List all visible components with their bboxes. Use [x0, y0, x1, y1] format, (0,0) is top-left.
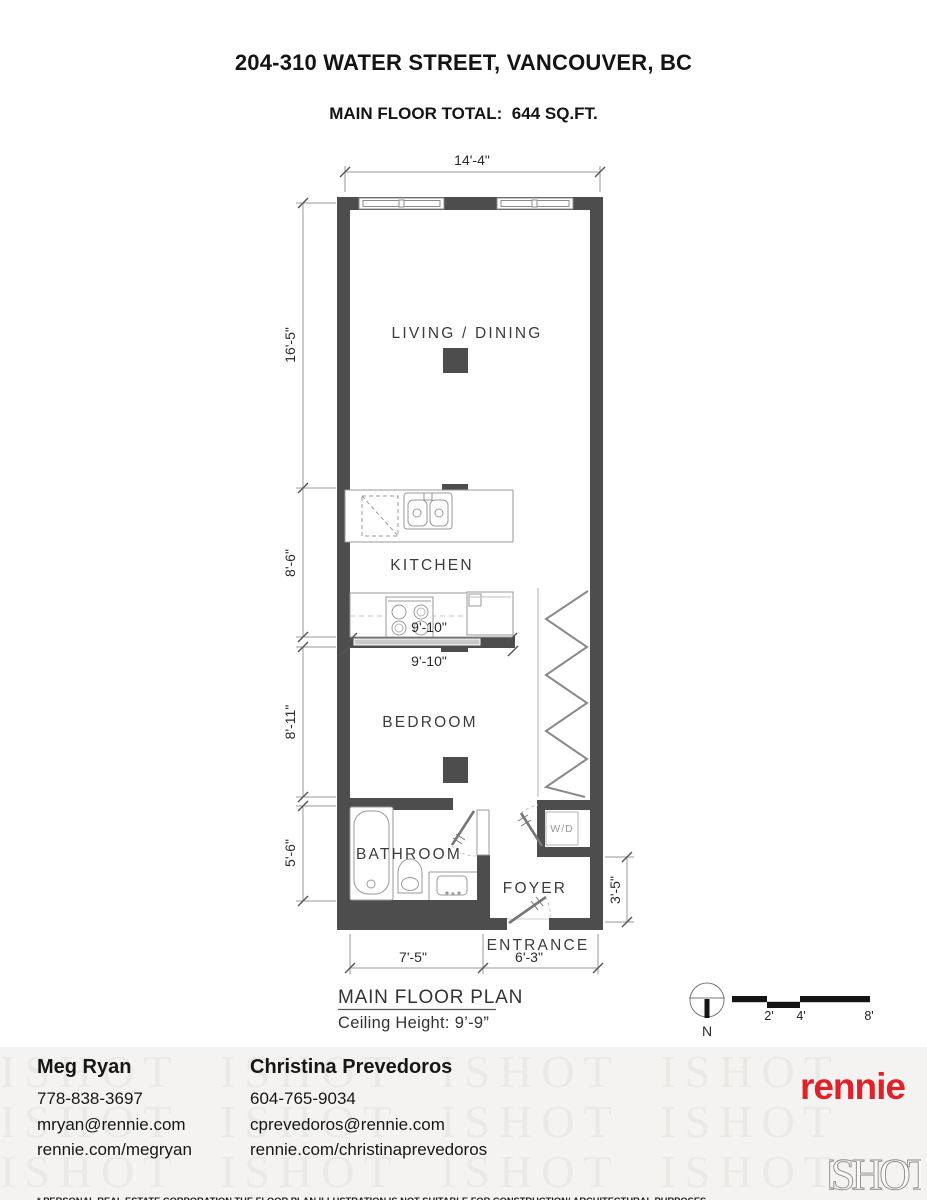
- agent-email: mryan@rennie.com: [37, 1112, 192, 1138]
- scale-tick-8: 8': [864, 1009, 873, 1023]
- scale-bar: 2' 4' 8': [732, 996, 874, 1023]
- agent-website: rennie.com/christinaprevedoros: [250, 1137, 487, 1163]
- plan-caption: MAIN FLOOR PLAN Ceiling Height: 9’-9”: [338, 987, 523, 1032]
- sliding-door: [354, 639, 480, 645]
- plan-caption-title: MAIN FLOOR PLAN: [338, 987, 523, 1008]
- disclaimer: * PERSONAL REAL ESTATE CORPORATION.THE F…: [37, 1163, 837, 1200]
- closet-bifold-doors: [538, 588, 588, 797]
- washer-dryer-label: W/D: [550, 823, 573, 835]
- dim-bathroom-height: 5'-6": [282, 839, 298, 867]
- toilet-icon: [398, 859, 422, 893]
- ishot-logo-text: ISHOT: [829, 1150, 921, 1199]
- agent-card-meg-ryan: Meg Ryan 778-838-3697 mryan@rennie.com r…: [37, 1056, 192, 1163]
- washer-dryer-unit: W/D: [546, 812, 578, 845]
- agent-name: Christina Prevedoros: [250, 1056, 487, 1079]
- floor-plan-drawing: W/D 14'-4: [0, 0, 927, 1045]
- floorplan-flyer: 204-310 WATER STREET, VANCOUVER, BC MAIN…: [0, 0, 927, 1200]
- scale-tick-2: 2': [764, 1009, 773, 1023]
- fridge-icon: [467, 592, 513, 635]
- scale-tick-4: 4': [796, 1009, 805, 1023]
- agent-phone: 604-765-9034: [250, 1086, 487, 1112]
- kitchen-label: KITCHEN: [390, 557, 473, 574]
- agent-email: cprevedoros@rennie.com: [250, 1112, 487, 1138]
- agent-website: rennie.com/megryan: [37, 1137, 192, 1163]
- vanity-sink-icon: [429, 872, 477, 900]
- agent-phone: 778-838-3697: [37, 1086, 192, 1112]
- entrance-label: ENTRANCE: [487, 937, 590, 954]
- bathroom-label: BATHROOM: [356, 846, 462, 863]
- dim-bedroom-height: 8'-11": [282, 705, 298, 740]
- dim-living-height: 16'-5": [282, 327, 298, 363]
- foyer-label: FOYER: [503, 880, 567, 897]
- dim-kitchen-width-lower: 9'-10": [411, 653, 447, 669]
- rennie-logo: rennie: [787, 1062, 907, 1110]
- dim-foyer-depth: 3'-5": [607, 876, 623, 904]
- living-dining-label: LIVING / DINING: [392, 325, 543, 342]
- double-sink-icon: [404, 493, 452, 529]
- north-label: N: [702, 1023, 712, 1039]
- agent-name: Meg Ryan: [37, 1056, 192, 1079]
- dim-kitchen-height: 8'-6": [282, 549, 298, 577]
- dim-bathroom-width: 7'-5": [399, 949, 427, 965]
- rennie-logo-text: rennie: [800, 1066, 905, 1107]
- bathroom-partition: [477, 810, 489, 855]
- agent-card-christina-prevedoros: Christina Prevedoros 604-765-9034 cpreve…: [250, 1056, 487, 1163]
- kitchen-island: [345, 490, 513, 542]
- ceiling-height-label: Ceiling Height: 9’-9”: [338, 1014, 489, 1032]
- north-compass-icon: N: [689, 983, 725, 1039]
- dim-top-width: 14'-4": [454, 152, 490, 168]
- ishot-logo: ISHOT: [829, 1147, 921, 1199]
- disclaimer-line-1: * PERSONAL REAL ESTATE CORPORATION.THE F…: [37, 1194, 837, 1200]
- dim-kitchen-width-upper: 9'-10": [411, 619, 447, 635]
- bedroom-label: BEDROOM: [382, 714, 478, 731]
- entrance-door: [507, 897, 550, 923]
- footer: ISHOT ISHOT ISHOT ISHOT ISHOT ISHOT ISHO…: [0, 1047, 927, 1200]
